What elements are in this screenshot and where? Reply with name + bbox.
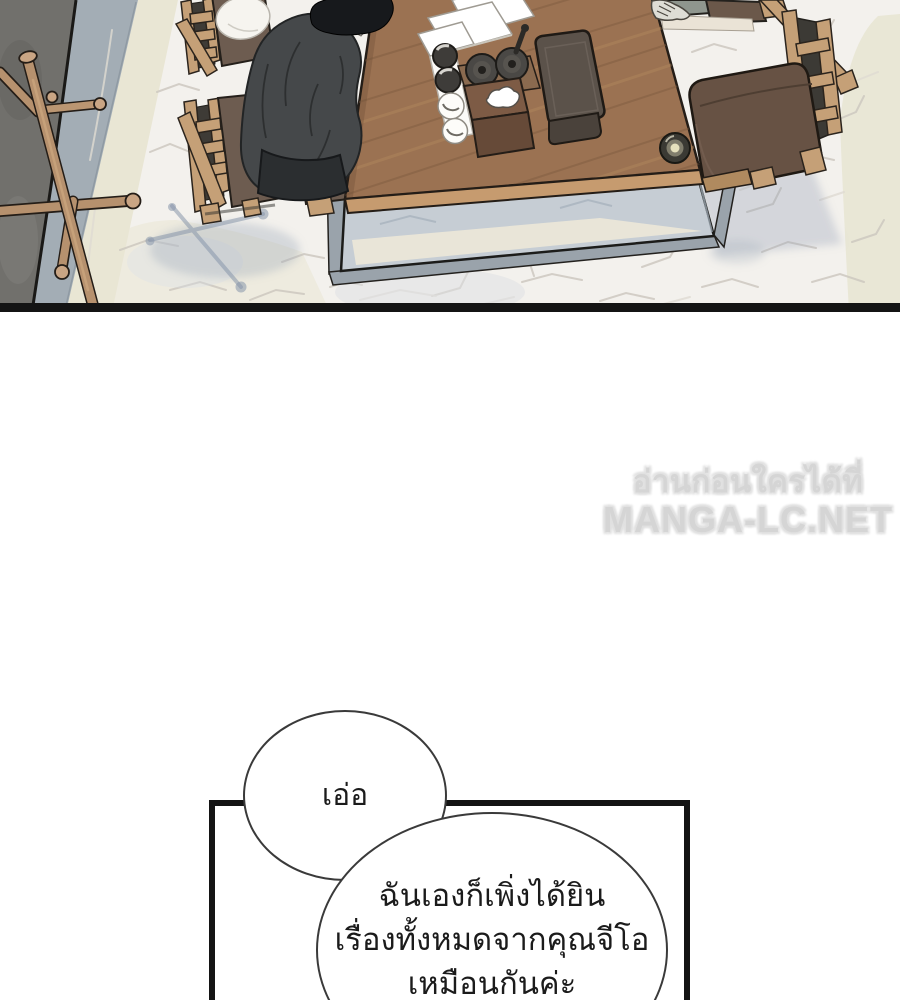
scene-illustration <box>0 0 900 312</box>
speech-bubble-small-text: เอ่อ <box>322 772 368 819</box>
speech-line: เรื่องทั้งหมดจากคุณจีโอ <box>318 918 666 962</box>
speech-bubble-large-text: ฉันเองก็เพิ่งได้ยิน เรื่องทั้งหมดจากคุณจ… <box>318 874 666 1000</box>
manga-page: อ่านก่อนใครได้ที่ MANGA-LC.NET เอ่อ ฉันเ… <box>0 0 900 1000</box>
speech-line: ฉันเองก็เพิ่งได้ยิน <box>318 874 666 918</box>
panel-border-line <box>0 303 900 312</box>
top-panel-restaurant-scene <box>0 0 900 312</box>
call-bell <box>660 133 690 163</box>
watermark-line2: MANGA-LC.NET <box>598 499 898 541</box>
speech-line: เหมือนกันค่ะ <box>318 962 666 1000</box>
